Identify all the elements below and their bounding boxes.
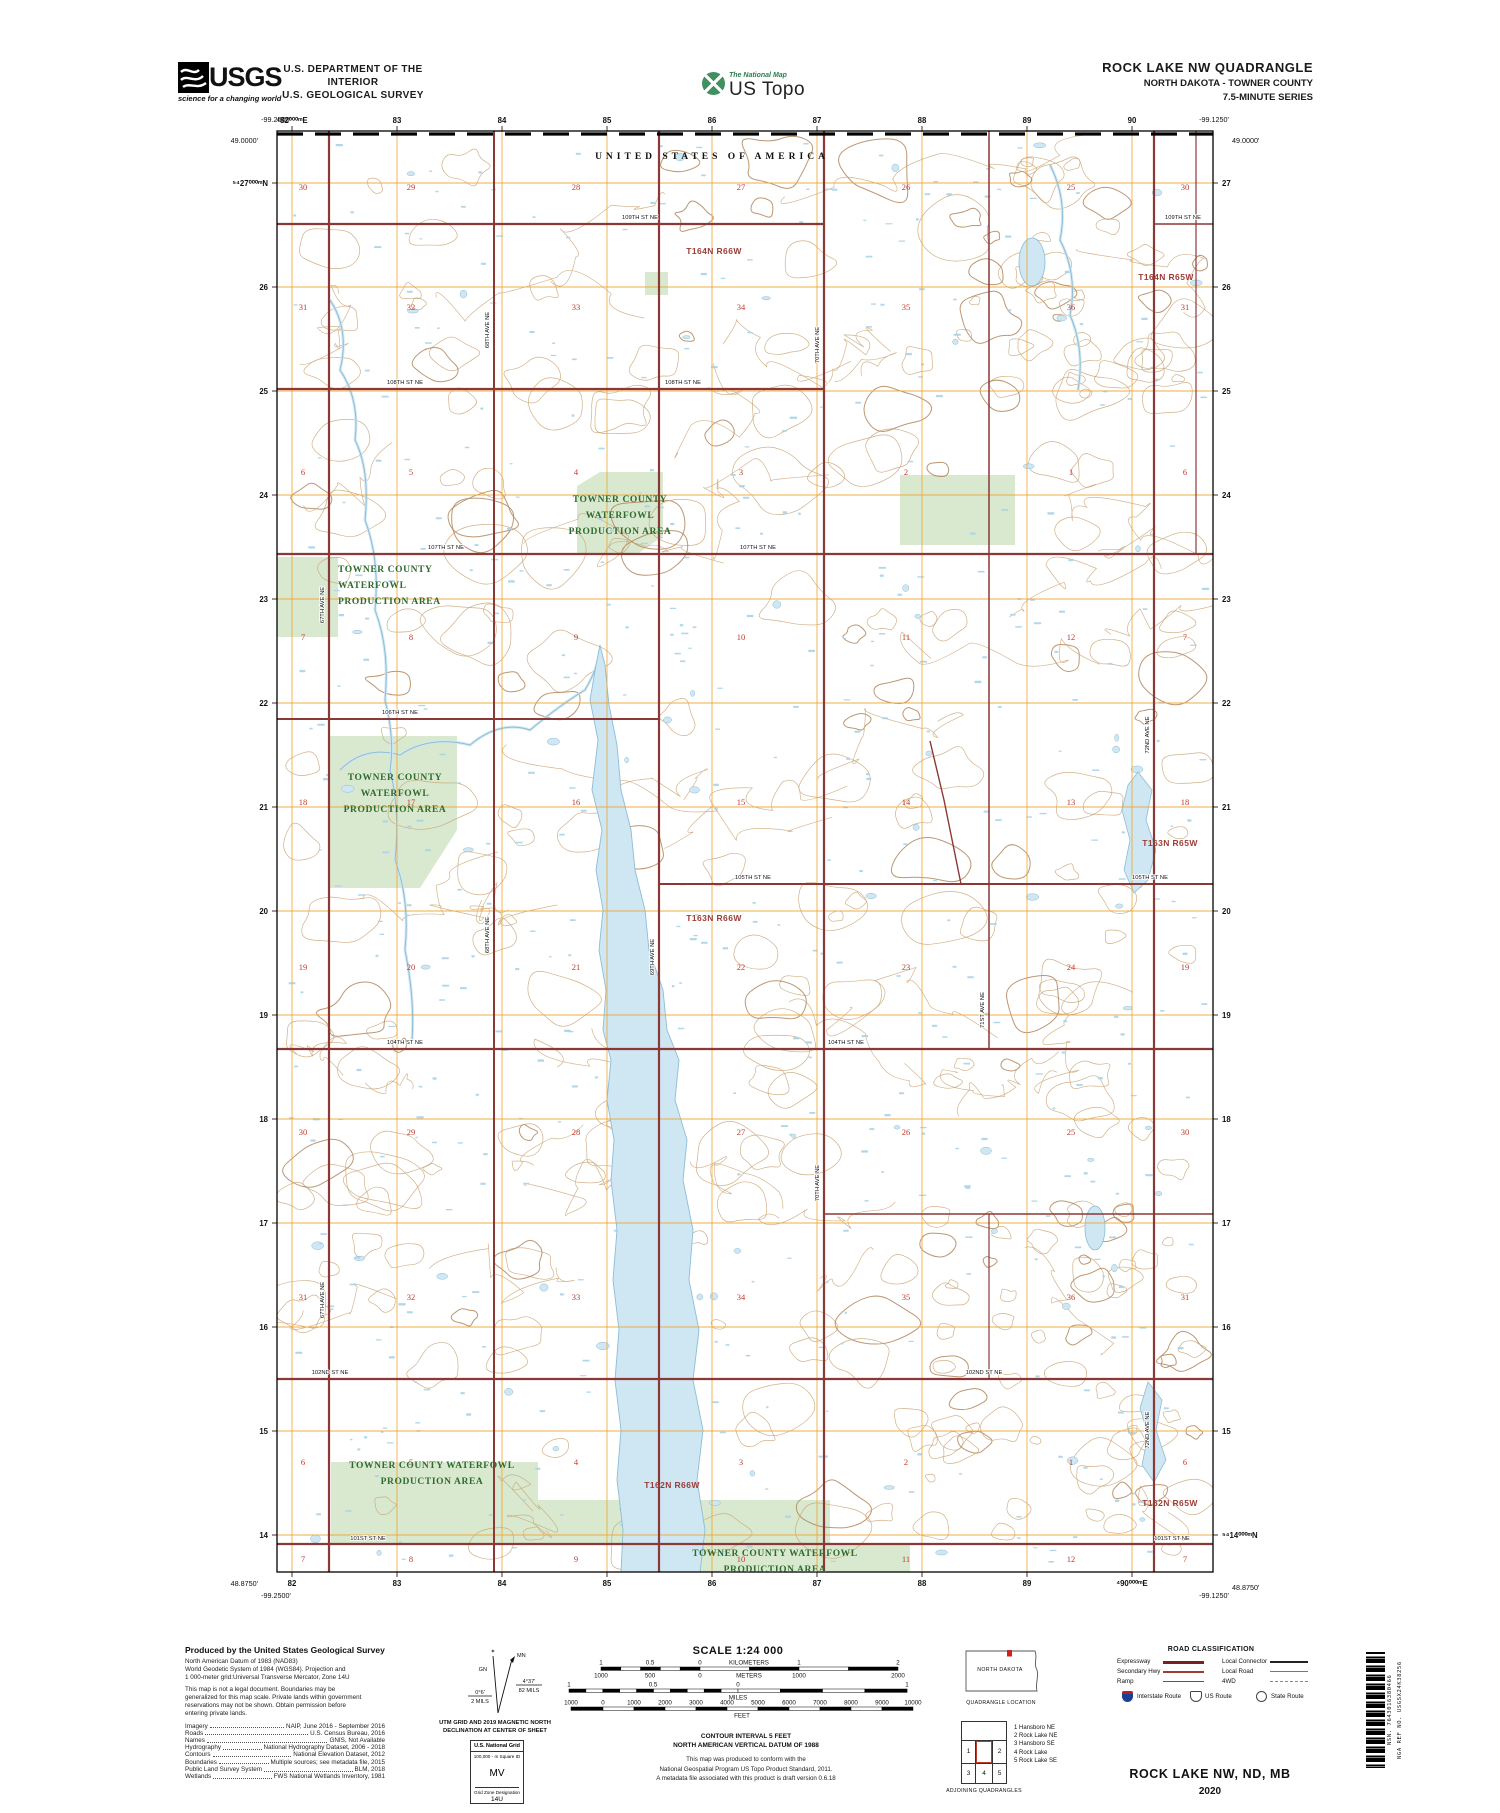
marsh-speck	[1017, 1537, 1021, 1538]
contour-line	[922, 1206, 950, 1227]
contour-line	[1007, 975, 1060, 1032]
marsh-speck	[975, 681, 982, 683]
marsh-speck	[568, 954, 571, 956]
scale-bar-segment	[670, 1689, 687, 1692]
marsh-speck	[659, 203, 665, 204]
contour-line	[752, 385, 812, 438]
scale-bar-segment	[654, 1689, 671, 1692]
grid-north-label: GN	[479, 1667, 487, 1673]
marsh-speck	[1111, 1336, 1116, 1338]
marsh-speck	[785, 1516, 791, 1518]
source-label: Public Land Survey System	[185, 1766, 262, 1773]
us-route-icon	[1190, 1691, 1202, 1702]
contour-line	[751, 198, 773, 217]
section-number: 19	[299, 962, 308, 972]
road-name-label: 71ST AVE NE	[980, 992, 986, 1028]
datum-lines: North American Datum of 1983 (NAD83)Worl…	[185, 1658, 390, 1681]
roadclass-line-sample	[1163, 1671, 1204, 1673]
marsh-speck	[789, 1134, 792, 1136]
marsh-speck	[380, 1156, 385, 1158]
marsh-speck	[1017, 147, 1022, 148]
corner-coordinate: 49.0000'	[1232, 136, 1260, 145]
marsh-speck	[507, 528, 512, 530]
contour-line	[1064, 339, 1101, 366]
marsh-speck	[1073, 1536, 1078, 1538]
contour-line	[1158, 1159, 1189, 1180]
utm-northing-label: 25	[1222, 387, 1231, 396]
township-label: T162N R66W	[644, 1480, 700, 1490]
national-map-icon	[702, 72, 725, 95]
marsh-speck	[474, 544, 478, 546]
adjoining-quadrangles-caption: ADJOINING QUADRANGLES	[938, 1788, 1030, 1794]
ustopo-label-top: The National Map	[729, 72, 805, 79]
pond	[1145, 1126, 1152, 1129]
road-name-label: 101ST ST NE	[1154, 1536, 1190, 1542]
contour-line	[945, 1280, 958, 1289]
pond	[353, 630, 363, 634]
section-number: 3	[739, 1457, 743, 1467]
marsh-speck	[869, 1128, 874, 1130]
contour-line	[412, 347, 458, 381]
marsh-speck	[827, 859, 831, 861]
marsh-speck	[866, 326, 872, 328]
declination-caption-1: UTM GRID AND 2019 MAGNETIC NORTH	[425, 1719, 565, 1727]
marsh-speck	[383, 820, 388, 822]
contour-line	[629, 345, 679, 380]
pond	[540, 1284, 548, 1291]
section-number: 23	[902, 962, 911, 972]
roadclass-line-sample	[1270, 1661, 1308, 1663]
quad-subtitle: NORTH DAKOTA - TOWNER COUNTY	[983, 78, 1313, 89]
marsh-speck	[927, 731, 930, 733]
section-number: 14	[902, 797, 911, 807]
marsh-speck	[978, 571, 985, 573]
utm-easting-label: 83	[393, 116, 402, 125]
contour-line	[442, 149, 490, 186]
marsh-speck	[1118, 1412, 1124, 1414]
pond	[689, 787, 699, 793]
marsh-speck	[1100, 404, 1105, 405]
scale-bar-segment	[687, 1689, 704, 1692]
marsh-speck	[586, 1392, 591, 1393]
scale-bar-segment	[780, 1689, 822, 1692]
contour-line	[276, 1182, 314, 1210]
marsh-speck	[690, 938, 697, 940]
contour-line	[864, 386, 932, 431]
marsh-speck	[670, 608, 677, 609]
marsh-speck	[903, 843, 907, 845]
contour-line	[920, 1233, 956, 1257]
contour-line	[440, 469, 464, 485]
marsh-speck	[357, 1448, 360, 1450]
township-label: T163N R66W	[686, 913, 742, 923]
section-number: 36	[1067, 1292, 1076, 1302]
marsh-speck	[407, 904, 412, 906]
marsh-speck	[959, 1473, 962, 1475]
scale-bar-segment	[882, 1707, 913, 1710]
marsh-speck	[415, 1422, 420, 1423]
road-name-label: 70TH AVE NE	[815, 327, 821, 363]
marsh-speck	[681, 633, 688, 635]
produced-by: Produced by the United States Geological…	[185, 1645, 390, 1655]
utm-easting-label: 89	[1023, 1579, 1032, 1588]
marsh-speck	[1034, 622, 1041, 624]
marsh-speck	[480, 1183, 485, 1185]
contour-line	[867, 609, 897, 630]
scale-bar-label: 3000	[689, 1700, 703, 1707]
marsh-speck	[863, 220, 866, 221]
marsh-speck	[808, 650, 815, 652]
pond	[377, 1550, 382, 1555]
utm-northing-label: 15	[1222, 1427, 1231, 1436]
road-name-label: 69TH AVE NE	[650, 939, 656, 975]
marsh-speck	[1059, 751, 1062, 752]
marsh-speck	[936, 395, 943, 397]
section-number: 21	[572, 962, 581, 972]
marsh-speck	[436, 517, 442, 519]
marsh-speck	[560, 1293, 564, 1295]
marsh-speck	[1035, 1258, 1038, 1260]
marsh-speck	[381, 1432, 384, 1433]
department-heading: U.S. DEPARTMENT OF THE INTERIOR U.S. GEO…	[268, 63, 438, 102]
marsh-speck	[864, 1200, 868, 1202]
section-number: 11	[902, 1554, 910, 1564]
marsh-speck	[966, 1273, 971, 1275]
magnetic-north-arrow	[510, 1656, 515, 1663]
utm-easting-label: 83	[393, 1579, 402, 1588]
marsh-speck	[496, 1031, 503, 1033]
contour-line	[530, 276, 559, 301]
marsh-speck	[932, 1025, 937, 1027]
marsh-speck	[793, 1037, 800, 1039]
marsh-speck	[389, 1356, 395, 1358]
contour-line	[385, 1244, 424, 1268]
contour-line	[1070, 1438, 1137, 1487]
marsh-speck	[753, 921, 758, 923]
marsh-speck	[684, 557, 689, 559]
dot-leader	[210, 1723, 284, 1729]
utm-northing-label: 19	[259, 1011, 268, 1020]
marsh-speck	[417, 1116, 424, 1118]
marsh-speck	[460, 1392, 464, 1394]
pond	[1088, 1158, 1095, 1161]
scale-bar-label: 1000	[594, 1672, 608, 1679]
wpa-label: PRODUCTION AREA	[569, 527, 672, 537]
quad-title-block: ROCK LAKE NW QUADRANGLE NORTH DAKOTA - T…	[983, 60, 1313, 103]
road-name-label: 72ND AVE NE	[1145, 716, 1151, 753]
contour-line	[843, 625, 866, 643]
section-number: 34	[737, 1292, 746, 1302]
wpa-label: TOWNER COUNTY WATERFOWL	[692, 1549, 857, 1559]
marsh-speck	[337, 685, 341, 686]
marsh-speck	[920, 661, 927, 663]
marsh-speck	[1050, 1550, 1057, 1551]
contour-line	[690, 1156, 783, 1208]
marsh-speck	[309, 728, 313, 730]
road-name-label: 68TH AVE NE	[485, 917, 491, 953]
roadclass-left-label: Secondary Hwy	[1117, 1668, 1163, 1675]
marsh-speck	[1031, 1201, 1037, 1202]
marsh-speck	[580, 1375, 587, 1376]
marsh-speck	[350, 1284, 357, 1286]
source-value: National Hydrography Dataset, 2006 - 201…	[264, 1744, 385, 1751]
roadclass-right-label: 4WD	[1222, 1678, 1270, 1685]
marsh-speck	[433, 1077, 437, 1079]
marsh-speck	[1063, 1020, 1067, 1022]
scale-bar-label: 4000	[720, 1700, 734, 1707]
contour-line	[934, 1074, 963, 1088]
contour-line	[930, 1356, 968, 1377]
contour-note-1: CONTOUR INTERVAL 5 FEET	[640, 1732, 852, 1741]
marsh-speck	[576, 153, 581, 155]
adjoining-quadrangles-legend: 1 Hansboro NE2 Rock Lake NE3 Hansboro SE…	[1014, 1724, 1057, 1765]
marsh-speck	[1200, 397, 1206, 399]
marsh-speck	[319, 1243, 323, 1244]
marsh-speck	[1080, 323, 1084, 325]
marsh-speck	[358, 894, 365, 895]
road-classification-shields: Interstate RouteUS RouteState Route	[1110, 1691, 1320, 1705]
marsh-speck	[806, 1041, 812, 1043]
marsh-speck	[442, 957, 449, 959]
contour-line	[595, 399, 650, 434]
marsh-speck	[1016, 1516, 1021, 1518]
pond	[421, 965, 430, 969]
ustopo-label-main: US Topo	[729, 79, 805, 101]
marsh-speck	[899, 1092, 904, 1094]
pond	[310, 1535, 320, 1543]
marsh-speck	[1001, 1158, 1007, 1159]
scale-bar-label: 8000	[844, 1700, 858, 1707]
marsh-speck	[1084, 1389, 1090, 1391]
datum-line: North American Datum of 1983 (NAD83)	[185, 1658, 390, 1666]
contour-line	[818, 709, 963, 779]
contour-line	[476, 883, 508, 924]
marsh-speck	[317, 724, 324, 726]
marsh-speck	[678, 1028, 685, 1030]
marsh-speck	[721, 278, 726, 279]
marsh-speck	[1122, 1336, 1129, 1338]
pond	[1062, 1303, 1070, 1310]
utm-easting-label: 87	[813, 1579, 822, 1588]
corner-coordinate: 48.8750'	[231, 1579, 259, 1588]
contour-line	[765, 333, 809, 354]
marsh-speck	[1186, 1097, 1190, 1099]
marsh-speck	[701, 942, 708, 944]
road-name-label: 106TH ST NE	[382, 710, 418, 716]
contour-line	[703, 853, 745, 886]
scale-bar-label: 1	[797, 1660, 801, 1667]
marsh-speck	[998, 706, 1002, 708]
marsh-speck	[319, 849, 322, 850]
marsh-speck	[540, 1410, 546, 1412]
contour-line	[1160, 611, 1196, 633]
marsh-speck	[916, 218, 919, 220]
road-name-label: 101ST ST NE	[350, 1536, 386, 1542]
marsh-speck	[552, 343, 555, 345]
contour-line	[1071, 1268, 1114, 1302]
road-name-label: 108TH ST NE	[665, 380, 701, 386]
contour-line	[1135, 332, 1195, 371]
marsh-speck	[982, 656, 987, 658]
section-number: 1	[1069, 467, 1073, 477]
dot-leader	[207, 1737, 328, 1743]
marsh-speck	[688, 648, 692, 649]
contour-line	[983, 1257, 997, 1268]
marsh-speck	[357, 1069, 362, 1071]
contour-line	[960, 291, 1022, 343]
contour-line	[903, 708, 920, 721]
marsh-speck	[572, 359, 577, 361]
marsh-speck	[825, 189, 832, 190]
marsh-speck	[981, 1138, 987, 1140]
marsh-speck	[739, 485, 745, 487]
marsh-speck	[743, 497, 749, 499]
marsh-speck	[919, 1195, 926, 1196]
legal-lines: This map is not a legal document. Bounda…	[185, 1686, 390, 1717]
scale-bar-segment	[799, 1667, 849, 1670]
contour-line	[338, 1047, 400, 1089]
utm-easting-label: 88	[918, 116, 927, 125]
marsh-speck	[1183, 953, 1188, 955]
contour-line	[984, 231, 1000, 244]
contour-line	[1107, 1428, 1144, 1460]
township-label: T164N R66W	[686, 246, 742, 256]
contour-line	[519, 1124, 537, 1140]
marsh-speck	[953, 299, 957, 301]
scale-bar-label: FEET	[734, 1712, 750, 1719]
marsh-speck	[462, 1296, 467, 1297]
marsh-speck	[885, 223, 892, 224]
utm-northing-label: 22	[259, 699, 268, 708]
roadclass-line-sample	[1270, 1681, 1308, 1682]
section-number: 27	[737, 1127, 746, 1137]
contour-line	[1098, 885, 1136, 914]
section-number: 16	[572, 797, 581, 807]
contour-line	[1027, 1229, 1057, 1254]
marsh-speck	[908, 461, 914, 463]
marsh-speck	[843, 638, 846, 640]
pond	[1023, 464, 1034, 469]
marsh-speck	[432, 1142, 437, 1144]
contour-line	[768, 1072, 817, 1108]
pond	[553, 1446, 559, 1451]
wpa-label: TOWNER COUNTY	[338, 565, 432, 575]
section-number: 30	[299, 1127, 308, 1137]
road-name-label: 72ND AVE NE	[1145, 1411, 1151, 1448]
contour-line	[835, 1296, 920, 1344]
pond	[894, 1126, 900, 1130]
road-name-label: 102ND ST NE	[312, 1370, 349, 1376]
contour-line	[1083, 187, 1131, 219]
section-number: 11	[902, 632, 910, 642]
marsh-speck	[566, 237, 570, 239]
contour-line	[1000, 1289, 1016, 1301]
marsh-speck	[906, 353, 912, 355]
utm-easting-label: 86	[708, 116, 717, 125]
marsh-speck	[723, 947, 729, 949]
scale-bar-label: 0.5	[646, 1660, 655, 1667]
contour-line	[1009, 557, 1161, 617]
contour-line	[1045, 772, 1112, 819]
marsh-speck	[651, 585, 654, 586]
marsh-speck	[486, 843, 490, 845]
marsh-speck	[1189, 1244, 1194, 1246]
scale-bar-segment	[789, 1707, 820, 1710]
marsh-speck	[1036, 1073, 1043, 1074]
contour-line	[1090, 639, 1130, 666]
contour-line	[800, 1311, 838, 1342]
road-name-label: 67TH AVE NE	[320, 587, 326, 623]
marsh-speck	[483, 1153, 488, 1155]
section-number: 7	[1183, 632, 1187, 642]
marsh-speck	[1157, 740, 1160, 742]
stream	[330, 300, 413, 1040]
roadclass-right-label: Local Road	[1222, 1668, 1270, 1675]
roadclass-left-label: Ramp	[1117, 1678, 1163, 1685]
usgs-logo: USGS science for a changing world	[178, 62, 282, 103]
contour-line	[933, 609, 967, 641]
pond	[981, 1147, 992, 1154]
ustopo-logo: The National Map US Topo	[702, 72, 805, 101]
marsh-speck	[572, 1085, 578, 1087]
marsh-speck	[449, 1555, 454, 1557]
contour-line	[1055, 864, 1079, 880]
section-number: 8	[409, 632, 413, 642]
contour-line	[1169, 945, 1196, 963]
pond	[1057, 315, 1067, 321]
marsh-speck	[439, 999, 445, 1001]
scale-bar-segment	[750, 1667, 800, 1670]
marsh-speck	[1122, 831, 1126, 833]
marsh-speck	[376, 460, 382, 462]
legal-line: This map is not a legal document. Bounda…	[185, 1686, 390, 1694]
marsh-speck	[861, 1150, 868, 1152]
contour-line	[302, 897, 381, 942]
marsh-speck	[470, 569, 473, 571]
marsh-speck	[398, 902, 401, 904]
marsh-speck	[460, 987, 467, 989]
contour-line	[352, 1233, 382, 1257]
section-number: 31	[1181, 1292, 1190, 1302]
section-number: 4	[574, 1457, 579, 1467]
marsh-speck	[826, 1411, 829, 1412]
marsh-speck	[684, 348, 689, 350]
contour-line	[290, 1037, 347, 1075]
marsh-speck	[997, 189, 1001, 190]
contour-line	[660, 698, 696, 735]
marsh-speck	[1090, 1181, 1095, 1183]
source-label: Boundaries	[185, 1759, 217, 1766]
marsh-speck	[650, 202, 655, 204]
roadclass-right-label: Local Connector	[1222, 1658, 1270, 1665]
marsh-speck	[720, 1432, 726, 1434]
marsh-speck	[583, 1360, 590, 1362]
marsh-speck	[1076, 192, 1080, 194]
pond	[903, 585, 909, 592]
contour-line	[286, 752, 320, 776]
utm-northing-label: 26	[259, 283, 268, 292]
contour-line	[835, 353, 897, 382]
contour-line	[365, 671, 410, 695]
pond	[505, 1388, 513, 1395]
pond	[1140, 1518, 1145, 1522]
scale-bar-label: 0	[698, 1660, 702, 1667]
contour-line	[1070, 1061, 1110, 1089]
marsh-speck	[1160, 1010, 1164, 1012]
contour-line	[440, 603, 511, 665]
marsh-speck	[538, 1059, 545, 1061]
declination-caption-2: DECLINATION AT CENTER OF SHEET	[425, 1727, 565, 1735]
